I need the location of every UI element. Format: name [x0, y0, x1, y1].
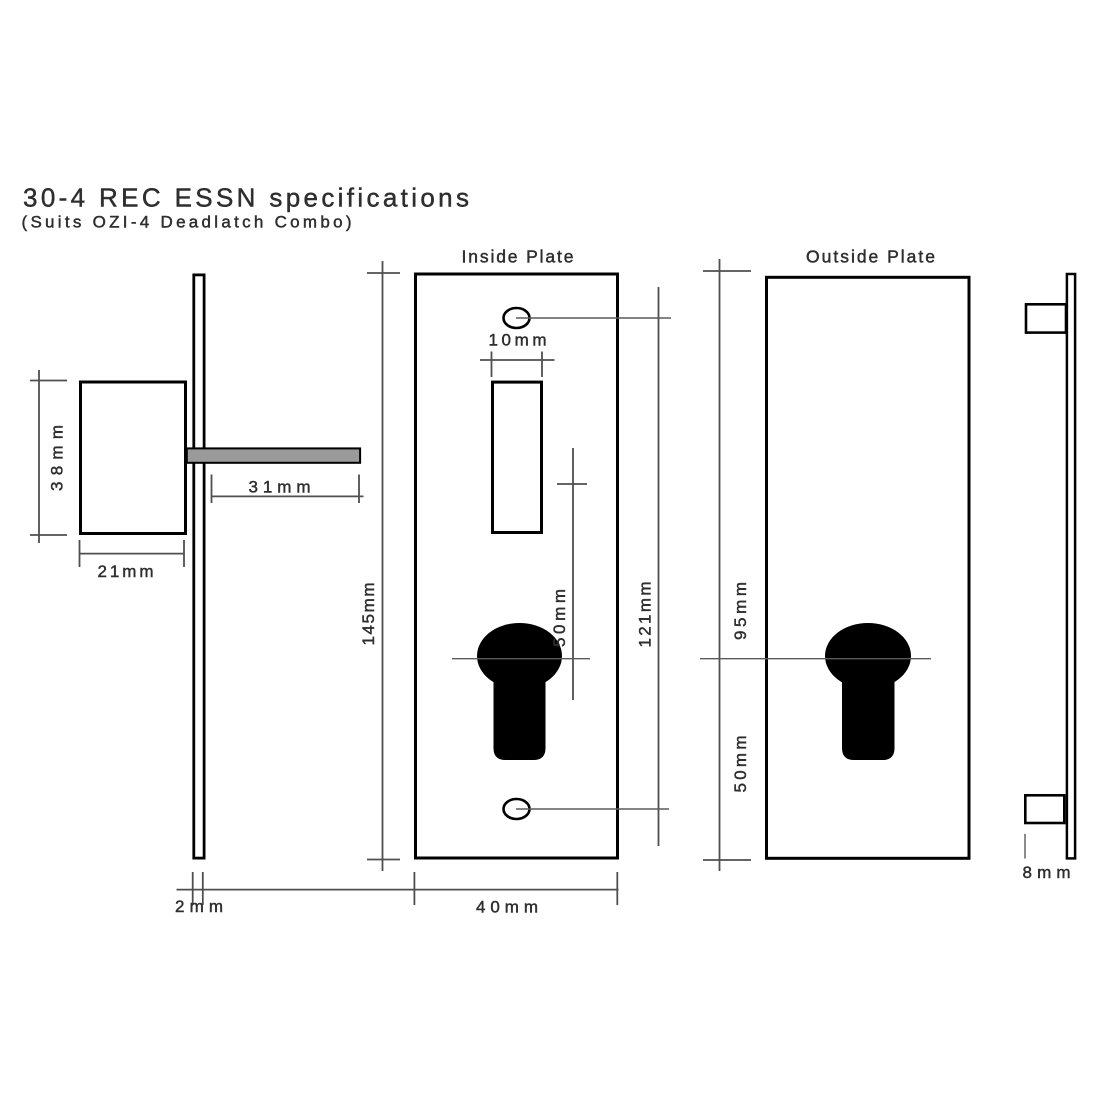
svg-text:2mm: 2mm: [175, 897, 223, 916]
svg-text:31mm: 31mm: [249, 478, 311, 497]
svg-text:10mm: 10mm: [489, 331, 547, 350]
svg-text:Outside Plate: Outside Plate: [806, 247, 935, 267]
svg-text:50mm: 50mm: [731, 736, 750, 793]
svg-text:95mm: 95mm: [731, 582, 750, 640]
svg-text:145mm: 145mm: [359, 583, 378, 646]
svg-text:40mm: 40mm: [476, 898, 538, 917]
svg-text:50mm: 50mm: [550, 589, 569, 647]
svg-text:8mm: 8mm: [1023, 863, 1071, 882]
svg-text:21mm: 21mm: [98, 562, 154, 581]
svg-text:30-4 REC ESSN specifications: 30-4 REC ESSN specifications: [23, 183, 469, 213]
